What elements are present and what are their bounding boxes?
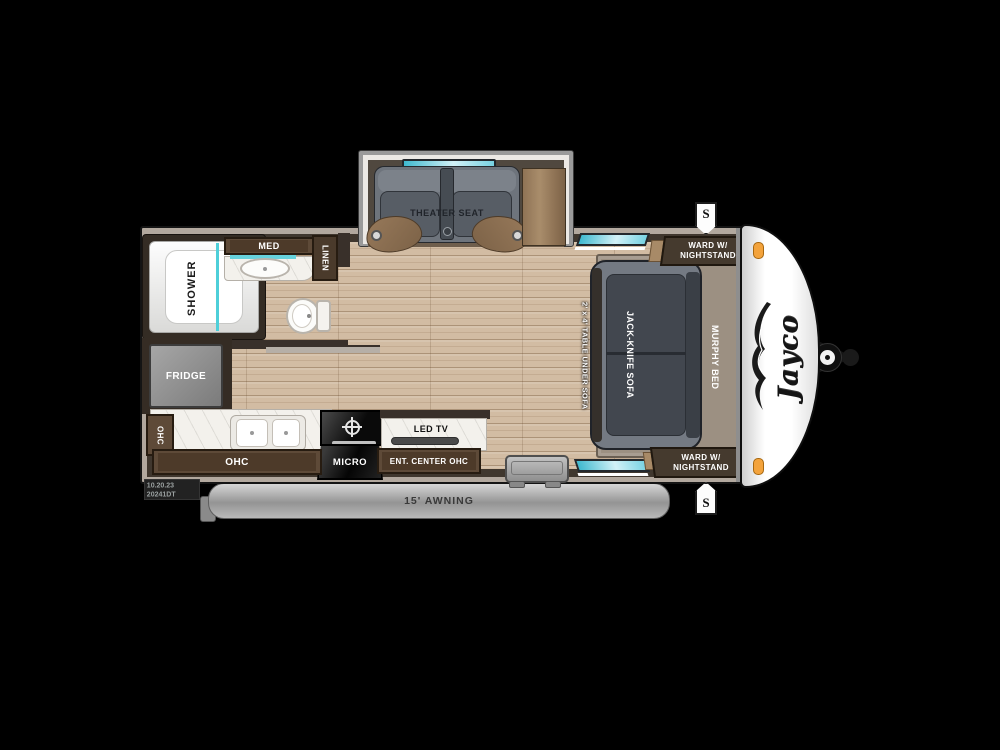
murphy-bed-label: MURPHY BED	[706, 303, 724, 411]
ward-top-line1: WARD W/	[688, 241, 727, 251]
hitch-coupler-dot	[825, 355, 830, 360]
sink-drain-right	[284, 431, 288, 435]
sink-drain-left	[250, 431, 254, 435]
shower-glass	[216, 243, 219, 331]
bath-wall-stub	[338, 233, 350, 267]
shower-label: SHOWER	[183, 246, 201, 330]
sofa-cushion-divider	[606, 352, 686, 355]
led-tv-label: LED TV	[381, 423, 481, 435]
bedroom-window-top-sill	[575, 247, 646, 250]
speaker-bottom-letter: S	[702, 495, 709, 511]
ward-bottom-line1: WARD W/	[681, 453, 720, 463]
toilet-bolt	[307, 314, 311, 318]
speaker-badge-bottom: S	[695, 482, 717, 515]
sofa-back-band	[686, 272, 700, 438]
bedroom-window-bottom-sill	[578, 473, 649, 476]
jayco-logo: Jayco	[770, 288, 808, 426]
stove-burner-icon	[345, 420, 360, 435]
slide-cabinet	[522, 168, 566, 246]
ent-center-label: ENT. CENTER OHC	[382, 452, 476, 470]
marker-light-top	[753, 242, 764, 259]
linen-label: LINEN	[315, 238, 335, 278]
stamp-line-1: 10.20.23	[147, 481, 197, 490]
entry-door-hinge-left	[509, 481, 525, 488]
theater-cupholder	[443, 227, 452, 236]
ohc-long-label: OHC	[158, 453, 316, 471]
entry-door-hinge-right	[545, 481, 561, 488]
toilet-tank	[316, 300, 331, 332]
marker-light-bottom	[753, 458, 764, 475]
sofa-cushions	[606, 274, 686, 436]
jack-knife-sofa-label: JACK-KNIFE SOFA	[622, 298, 638, 412]
med-label: MED	[230, 239, 308, 253]
sofa-under-table-bar	[592, 268, 602, 442]
tv-slab	[391, 437, 459, 445]
micro-label: MICRO	[317, 444, 383, 480]
awning-label: 15' AWNING	[208, 483, 670, 519]
hitch-knob	[842, 349, 859, 366]
entry-door-panel	[511, 461, 563, 475]
bedroom-window-bottom	[574, 459, 650, 472]
footrest-grommet-left	[371, 230, 382, 241]
table-under-sofa-label: 2' x 4' TABLE UNDER SOFA	[578, 290, 592, 422]
speaker-top-letter: S	[702, 206, 709, 222]
vanity-sink-drain	[263, 267, 267, 271]
ohc-small-label: OHC	[150, 417, 170, 453]
fridge-label: FRIDGE	[149, 344, 223, 408]
floorplan-canvas: 15' AWNING THEATER SEAT SHOWER MED LINEN…	[0, 0, 1000, 750]
bath-partition-light	[266, 345, 380, 353]
ward-top-line2: NIGHTSTAND	[680, 251, 736, 261]
ward-bottom-line2: NIGHTSTAND	[673, 463, 729, 473]
bedroom-window-top	[576, 233, 650, 246]
plan-stamp: 10.20.23 20241DT	[144, 479, 200, 500]
stamp-line-2: 20241DT	[147, 490, 197, 499]
